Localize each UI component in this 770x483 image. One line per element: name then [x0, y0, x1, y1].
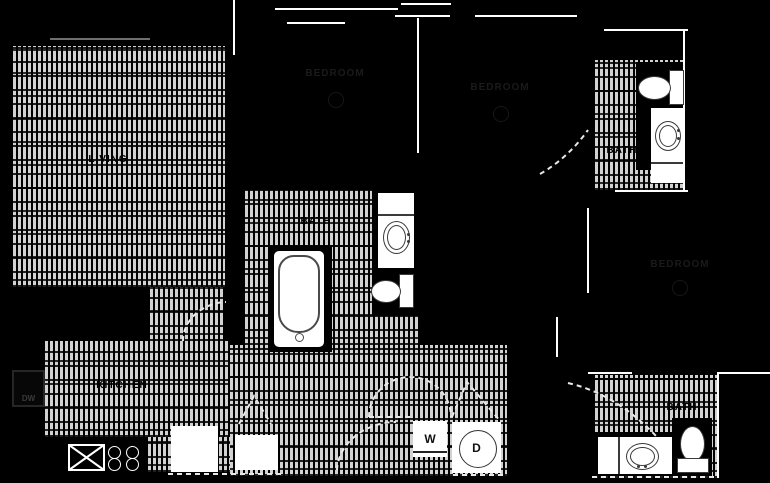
faucet-dot — [407, 240, 410, 243]
upper-bath-label: BATH — [592, 145, 652, 157]
center-bath-label: BATH — [286, 216, 346, 228]
dryer-label: D — [452, 422, 501, 473]
bedroom-label: BEDROOM — [465, 82, 535, 94]
lower-bath-top-wall — [588, 372, 632, 374]
wall-segment — [587, 208, 589, 293]
upper-bath-bottom-wall — [615, 190, 688, 192]
living-top-wall — [50, 38, 150, 40]
faucet-dot — [407, 233, 410, 236]
dishwasher-label: DW — [14, 394, 43, 403]
upper-bath-right-wall — [683, 30, 685, 190]
wall-segment — [475, 15, 577, 17]
ceiling-fan-icon — [328, 92, 344, 108]
living-kitchen-corridor-floor — [150, 287, 225, 341]
upper-bath-door-arc — [540, 130, 588, 174]
kitchen-label: KITCHEN — [82, 380, 162, 392]
wall-segment — [556, 317, 558, 357]
wall-segment — [417, 18, 419, 153]
toilet-tank-icon — [399, 274, 414, 308]
pantry-cabinet-icon — [235, 435, 278, 470]
bathtub-drain-icon — [295, 333, 304, 342]
wall-segment — [287, 22, 345, 24]
toilet-bowl-icon — [371, 280, 401, 303]
living-room-label: LIVING — [68, 154, 148, 166]
upper-bath-vanity — [651, 108, 683, 183]
bathtub-icon — [274, 251, 324, 347]
sink-basin-icon — [626, 443, 659, 470]
sink-basin-inner — [630, 447, 655, 466]
kitchen-sink-icon — [68, 444, 105, 471]
center-bath-vanity — [378, 193, 414, 268]
washer-icon: W — [413, 421, 447, 457]
toilet-tank-icon — [669, 70, 684, 105]
vanity-counter-line — [651, 162, 683, 164]
kitchen-floor-strip-left — [148, 437, 171, 472]
wall-segment — [401, 3, 451, 5]
dryer-icon: D — [452, 422, 501, 473]
toilet-tank-icon — [677, 458, 709, 473]
sink-basin-icon — [383, 221, 410, 254]
vanity-counter-line — [378, 214, 414, 216]
lower-bath-vanity — [598, 437, 672, 474]
lower-bath-top-wall-right — [717, 372, 770, 374]
lower-bath-label: BATH — [652, 402, 712, 414]
lower-bath-right-wall — [717, 373, 719, 478]
washer-base-line — [413, 451, 447, 453]
stove-burner-icon — [108, 458, 121, 471]
toilet-bowl-icon — [680, 426, 705, 462]
upper-bath-top-wall — [604, 29, 688, 31]
ceiling-fan-icon — [493, 106, 509, 122]
faucet-dot — [644, 465, 647, 468]
vanity-cabinet-line — [618, 437, 620, 474]
faucet-dot — [677, 129, 680, 132]
wall-segment — [275, 8, 398, 10]
ceiling-fan-icon — [672, 280, 688, 296]
faucet-dot — [677, 137, 680, 140]
bedroom-label: BEDROOM — [300, 68, 370, 80]
dishwasher-icon: DW — [12, 370, 45, 407]
bedroom-label: BEDROOM — [645, 259, 715, 271]
toilet-bowl-icon — [638, 76, 671, 100]
sink-basin-inner — [387, 225, 406, 250]
sink-basin-icon — [655, 121, 681, 151]
living-room-floor — [13, 46, 225, 287]
faucet-dot — [637, 465, 640, 468]
bathtub-basin — [278, 255, 320, 333]
wall-segment — [233, 0, 235, 55]
stove-burner-icon — [126, 458, 139, 471]
refrigerator-icon — [171, 426, 218, 472]
sink-basin-inner — [659, 125, 677, 147]
floor-plan: DW W D LIVING KITCHEN BATH BATH BATH BED… — [0, 0, 770, 483]
wall-segment — [395, 15, 450, 17]
